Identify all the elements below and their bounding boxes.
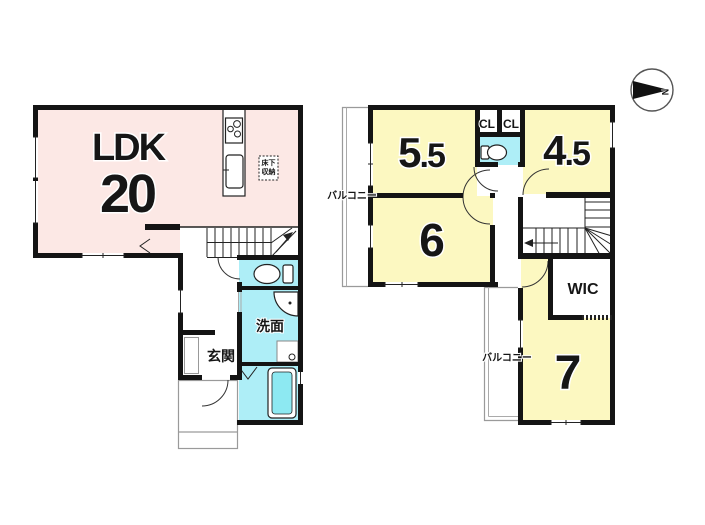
- washer-space-icon: [277, 341, 298, 362]
- window: [551, 420, 581, 425]
- underfloor-storage: 床下 収納: [259, 156, 278, 180]
- closet1-label: CL: [479, 117, 495, 131]
- floor1-plan: 床下 収納: [33, 105, 303, 449]
- kitchen-counter: [223, 107, 245, 196]
- balcony-bottom-label: バルコニー: [482, 352, 532, 364]
- balcony-left-label: バルコニー: [327, 190, 377, 202]
- window: [82, 253, 124, 258]
- ldk-label: LDK: [92, 127, 167, 169]
- window: [178, 290, 183, 313]
- room-5-5-label: 5.5: [398, 129, 445, 176]
- underfloor-storage-label1: 床下: [262, 158, 276, 167]
- window: [33, 137, 38, 178]
- wic-label: WIC: [567, 281, 599, 298]
- window: [368, 143, 373, 186]
- window: [33, 181, 38, 223]
- window: [385, 282, 418, 287]
- toilet1-door-arc: [218, 257, 240, 279]
- floor2-plan: 5.5 4.5 6 7 WIC CL CL バルコニー バルコニー: [327, 105, 615, 425]
- washroom-label: 洗面: [256, 318, 284, 334]
- compass: N: [631, 69, 673, 111]
- stairs2-arrow: [524, 239, 533, 247]
- toilet2-fixture: [481, 145, 507, 160]
- kitchen-sink-icon: [226, 155, 243, 188]
- compass-north-label: N: [660, 89, 670, 96]
- closet2-label: CL: [503, 117, 519, 131]
- window: [610, 122, 615, 148]
- underfloor-storage-label2: 収納: [262, 167, 276, 176]
- window: [518, 320, 523, 348]
- shoe-cabinet: [185, 338, 199, 374]
- entrance-label: 玄関: [207, 348, 235, 364]
- toilet1-fixture: [254, 265, 293, 284]
- room-4-5-label: 4.5: [543, 127, 590, 174]
- floorplan-svg: 床下 収納: [0, 0, 705, 525]
- ldk-room: [35, 107, 301, 256]
- ldk-size-label: 20: [100, 164, 155, 224]
- window: [298, 372, 303, 384]
- room-6-label: 6: [419, 214, 445, 266]
- entrance-door-arc: [202, 380, 228, 406]
- window: [368, 225, 373, 248]
- porch: [179, 381, 238, 449]
- floorplan-canvas: 床下 収納: [0, 0, 705, 525]
- stairs-floor2: [523, 196, 612, 255]
- room-7-label: 7: [555, 347, 582, 400]
- stairs-floor1: [180, 227, 298, 258]
